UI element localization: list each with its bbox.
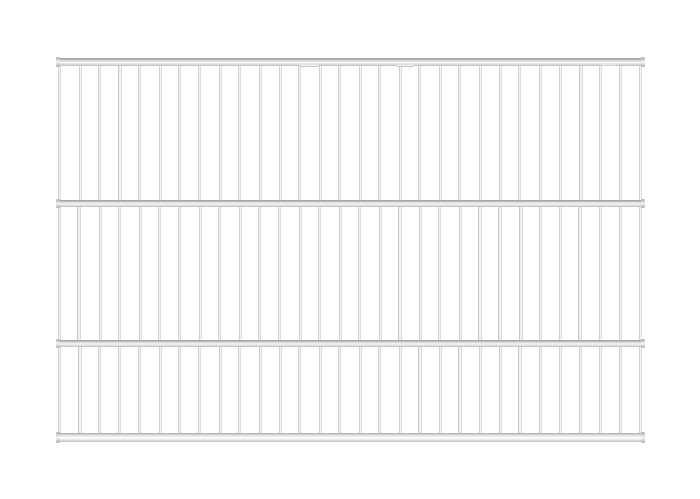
vertical-bar [399, 345, 402, 437]
vertical-bar [138, 345, 141, 437]
vertical-bar [318, 205, 321, 344]
vertical-bar [198, 62, 201, 204]
vertical-bar [178, 205, 181, 344]
vertical-bar [219, 345, 222, 437]
vertical-bar [259, 345, 262, 437]
weld-clip-mark [397, 64, 414, 67]
vertical-bar [99, 205, 102, 344]
vertical-bar [178, 62, 181, 204]
vertical-bar [479, 345, 482, 437]
vertical-bar [438, 205, 441, 344]
vertical-bar [299, 205, 302, 344]
vertical-bar [439, 62, 442, 204]
vertical-bar [519, 205, 522, 344]
vertical-bar [159, 62, 162, 204]
vertical-bar [118, 205, 121, 344]
horizontal-rail [56, 340, 645, 347]
horizontal-rail [56, 433, 645, 442]
vertical-bar [418, 345, 421, 437]
vertical-bar [239, 205, 242, 344]
vertical-bar [599, 345, 602, 437]
vertical-bar [379, 205, 382, 344]
vertical-bar [339, 205, 342, 344]
vertical-bar [98, 62, 101, 204]
vertical-bar [238, 62, 241, 204]
vertical-bar [58, 62, 61, 204]
vertical-bar [319, 345, 322, 437]
vertical-bar [559, 205, 562, 344]
vertical-bar [198, 345, 201, 437]
vertical-bar [359, 62, 362, 204]
vertical-bar [118, 345, 121, 437]
vertical-bar [619, 345, 622, 437]
vertical-bar [258, 205, 261, 344]
vertical-bar [238, 345, 241, 437]
vertical-bar [378, 62, 381, 204]
vertical-bar [599, 205, 602, 344]
vertical-bar [298, 62, 301, 204]
vertical-bar [498, 205, 501, 344]
vertical-bar [418, 62, 421, 204]
vertical-bar [639, 205, 642, 344]
vertical-bar [478, 205, 481, 344]
grid-fence-panel [0, 0, 700, 499]
vertical-bar [539, 205, 542, 344]
vertical-bar [559, 345, 562, 437]
vertical-bar [338, 62, 341, 204]
vertical-bar [479, 62, 482, 204]
vertical-bar [399, 62, 402, 204]
vertical-bar [319, 62, 322, 204]
vertical-bar [579, 62, 582, 204]
vertical-bar [259, 62, 262, 204]
vertical-bar [398, 205, 401, 344]
vertical-bar [518, 62, 521, 204]
vertical-bar [218, 205, 221, 344]
vertical-bar [499, 345, 502, 437]
vertical-bar [599, 62, 602, 204]
vertical-bar [639, 62, 642, 204]
vertical-bar [58, 345, 61, 437]
vertical-bar [278, 205, 281, 344]
vertical-bar [58, 205, 61, 344]
vertical-bar [79, 62, 82, 204]
vertical-bar [138, 62, 141, 204]
vertical-bar [78, 345, 81, 437]
vertical-bar [378, 345, 381, 437]
vertical-bar [159, 345, 162, 437]
vertical-bar [139, 205, 142, 344]
vertical-bar [358, 205, 361, 344]
vertical-bar [579, 345, 582, 437]
vertical-bar [539, 62, 542, 204]
vertical-bar [499, 62, 502, 204]
vertical-bar [77, 205, 80, 344]
vertical-bar [639, 345, 642, 437]
vertical-bar [458, 345, 461, 437]
vertical-bar [559, 62, 562, 204]
vertical-bar [279, 62, 282, 204]
vertical-bar [619, 205, 622, 344]
vertical-bar [199, 205, 202, 344]
vertical-bar [619, 62, 622, 204]
vertical-bar [359, 345, 362, 437]
vertical-bar [439, 345, 442, 437]
vertical-bar [219, 62, 222, 204]
vertical-bar [419, 205, 422, 344]
vertical-bar [118, 62, 121, 204]
vertical-bar [459, 205, 462, 344]
vertical-bar [158, 205, 161, 344]
horizontal-rail [56, 200, 645, 207]
vertical-bar [98, 345, 101, 437]
vertical-bar [458, 62, 461, 204]
vertical-bar [539, 345, 542, 437]
vertical-bar [298, 345, 301, 437]
weld-clip-mark [601, 64, 615, 66]
vertical-bar [518, 345, 521, 437]
weld-clip-mark [299, 64, 318, 67]
horizontal-rail [56, 58, 645, 66]
vertical-bar [279, 345, 282, 437]
vertical-bar [338, 345, 341, 437]
product-photo [0, 0, 700, 499]
vertical-bar [578, 205, 581, 344]
vertical-bar [178, 345, 181, 437]
